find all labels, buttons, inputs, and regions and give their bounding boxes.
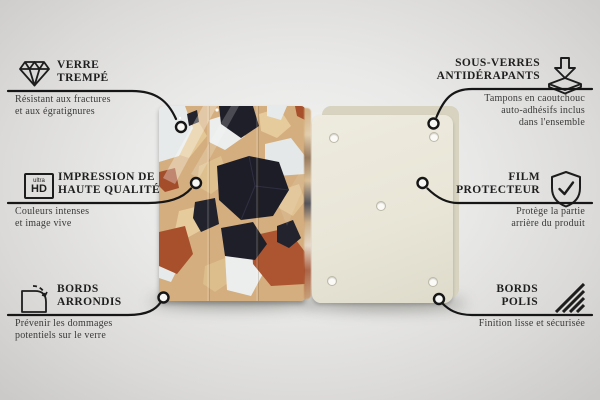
rounded-corner-icon [19, 283, 51, 318]
anti-slip-pad [429, 132, 439, 142]
anti-slip-pad [327, 276, 337, 286]
ultra-hd-icon-bottom: HD [31, 184, 47, 195]
callout-title-bords-polis: BORDS POLIS [496, 283, 538, 309]
callout-desc-impression: Couleurs intenses et image vive [15, 206, 89, 230]
callout-title-bords-arrondis: BORDS ARRONDIS [57, 283, 122, 309]
product-infographic: VERRE TREMPÉ Résistant aux fractures et … [0, 0, 600, 400]
diamond-icon [19, 60, 50, 92]
callout-desc-bords-polis: Finition lisse et sécurisée [479, 318, 585, 330]
callout-title-impression: IMPRESSION DE HAUTE QUALITÉ [58, 171, 160, 197]
callout-desc-sous-verres: Tampons en caoutchouc auto-adhésifs incl… [484, 93, 585, 129]
polished-edge-icon [548, 283, 585, 318]
callout-desc-bords-arrondis: Prévenir les dommages potentiels sur le … [15, 318, 113, 342]
anti-slip-pad [329, 133, 339, 143]
callout-desc-film-protecteur: Protège la partie arrière du produit [511, 206, 585, 230]
front-panel-side-edge [304, 108, 311, 299]
anti-slip-pad [376, 201, 386, 211]
callout-desc-verre-trempe: Résistant aux fractures et aux égratignu… [15, 94, 111, 118]
back-panel [312, 115, 453, 303]
callout-title-sous-verres: SOUS-VERRES ANTIDÉRAPANTS [437, 57, 540, 83]
terrazzo-pattern [159, 106, 305, 301]
anti-slip-pad [428, 277, 438, 287]
callout-title-verre-trempe: VERRE TREMPÉ [57, 59, 109, 85]
callout-title-film-protecteur: FILM PROTECTEUR [456, 171, 540, 197]
front-panel-terrazzo [159, 106, 305, 301]
ultra-hd-icon: ultra HD [24, 173, 54, 199]
